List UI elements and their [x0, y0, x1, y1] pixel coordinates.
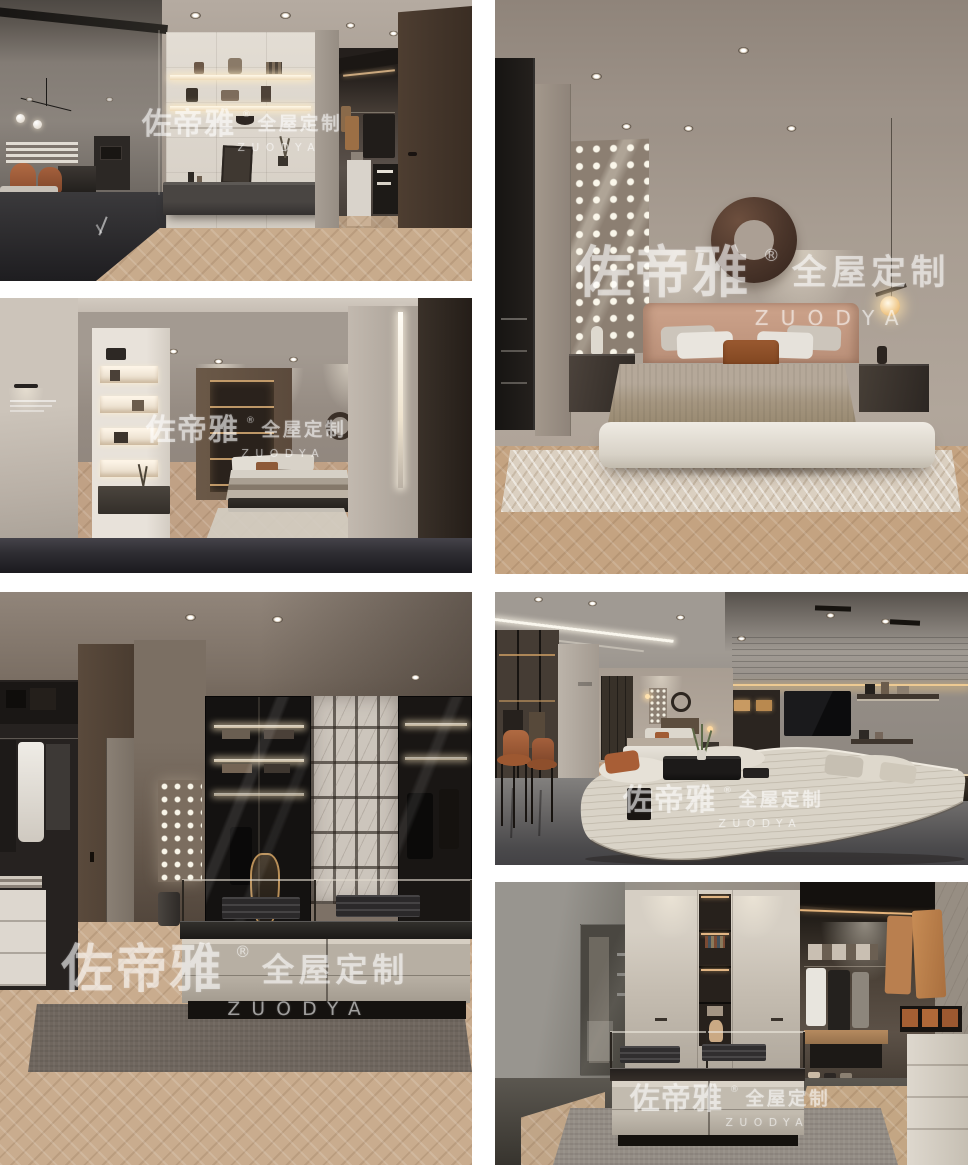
closet-room: [339, 48, 399, 242]
ceiling-downlight: [676, 615, 685, 621]
window-slats: [6, 142, 78, 166]
ceiling-downlight: [591, 73, 602, 80]
folded-clothes-stack: [222, 897, 300, 919]
bed-blanket: [226, 470, 352, 500]
photo-wardrobe-island-closet: 佐帝雅®全屋定制 ZUODYA: [495, 882, 968, 1165]
glass-rail-post: [182, 880, 184, 926]
folded-towels: [0, 876, 42, 888]
closet-led: [499, 700, 555, 702]
wall-plaque-line: [10, 405, 52, 407]
vertical-light-strip: [398, 312, 403, 488]
door-handle: [771, 1018, 783, 1021]
blanket-texture: [607, 364, 857, 428]
island-plinth: [618, 1135, 798, 1146]
ceiling-downlight: [787, 125, 797, 131]
drawer-line: [907, 1064, 968, 1066]
shelf-divider: [699, 966, 731, 968]
shelf-decor: [881, 682, 889, 694]
brand-watermark: 佐帝雅®全屋定制 ZUODYA: [576, 246, 950, 328]
hanging-coat-dark: [46, 744, 70, 830]
lit-niche: [756, 700, 772, 711]
shelf-box: [707, 1006, 723, 1016]
walnut-door-panel: [398, 6, 472, 258]
cubby-boxes: [900, 1006, 962, 1032]
lighted-niche: [100, 460, 158, 477]
hanging-jacket-dark: [828, 970, 850, 1032]
shelf-led: [701, 933, 729, 935]
hanging-garments-dark: [363, 114, 395, 158]
door-handle: [408, 152, 417, 156]
ceiling-downlight: [272, 616, 283, 623]
lighted-shelf: [170, 75, 311, 80]
ceiling-downlight: [826, 613, 835, 619]
wood-band-glow: [732, 684, 968, 686]
folded-clothes-stack: [336, 895, 420, 917]
brand-watermark: 佐帝雅®全屋定制 ZUODYA: [146, 416, 347, 460]
door-wash: [639, 896, 703, 940]
ceiling-downlight: [881, 619, 890, 625]
drawer-line: [907, 1096, 968, 1098]
folded-clothes-stack: [620, 1046, 680, 1063]
shelf-decor: [865, 684, 875, 694]
island-counter: [58, 166, 96, 192]
plant-vase: [697, 750, 706, 760]
hanging-rod: [804, 966, 888, 967]
hanging-garment-tan: [885, 916, 914, 995]
drawer-unit: [0, 890, 46, 986]
pendant-globe: [16, 114, 25, 123]
shelf-folded-stacks: [808, 944, 878, 960]
hanging-garment-tan: [345, 116, 359, 150]
left-room: [0, 0, 162, 196]
pedestal-decor: [351, 152, 363, 160]
ceiling-downlight: [280, 12, 291, 19]
wall-tv: [784, 691, 851, 736]
bar-stool: [497, 730, 531, 828]
hat-box: [106, 348, 126, 360]
folded-clothes-stack: [702, 1044, 766, 1061]
nightstand: [859, 364, 929, 412]
shelf-decor-vase: [228, 58, 242, 74]
orange-box: [902, 1009, 918, 1027]
drawer-tower: [907, 1034, 968, 1165]
shelf-decor-vase: [194, 62, 204, 74]
shelf-reflection: [501, 382, 527, 384]
shelf-books: [377, 182, 391, 185]
lit-niche: [734, 700, 750, 711]
stool-leg: [513, 766, 515, 828]
herringbone-floor: [96, 228, 472, 281]
orange-box: [922, 1009, 938, 1027]
shelf-books: [377, 170, 393, 173]
nightstand-decor: [877, 346, 887, 364]
stool-leg: [531, 768, 533, 824]
ceiling-dark-corner: [260, 592, 472, 710]
nook-round-mirror: [671, 692, 691, 712]
island-top-slab: [610, 1068, 805, 1081]
hanging-shirt-white: [806, 968, 826, 1026]
shelf-decor-books: [266, 62, 282, 74]
shelf-divider: [699, 930, 731, 932]
shelf-underglow: [857, 699, 939, 701]
waste-bin: [158, 892, 180, 926]
photo-bedroom-suite-view: 佐帝雅®全屋定制 ZUODYA: [0, 298, 472, 573]
shelf-decor-vessel: [261, 86, 271, 102]
side-table: [743, 768, 769, 778]
niche-decor: [132, 400, 144, 411]
shelf-led: [701, 896, 729, 898]
island-top-slab: [180, 921, 472, 939]
ceiling-downlight: [389, 31, 398, 37]
closet-led: [499, 654, 555, 656]
pillar-sign: [578, 682, 592, 686]
hanging-coat-gray: [852, 972, 869, 1028]
lit-shelf-column: [699, 894, 731, 1046]
oven: [100, 146, 122, 160]
stool-leg: [551, 768, 553, 822]
glass-rail-top: [182, 879, 472, 881]
upper-wood-band: [732, 636, 968, 686]
photo-collage: 佐帝雅®全屋定制 ZUODYA: [0, 0, 968, 1165]
pendant-globe: [33, 120, 42, 129]
lighted-niche: [100, 396, 158, 413]
stool-leg: [501, 764, 503, 826]
bar-stool: [527, 738, 557, 826]
shelf-reflection: [501, 350, 527, 352]
glass-rail-post: [470, 880, 472, 926]
lighted-niche: [100, 366, 158, 383]
glass-rail-post: [314, 880, 316, 926]
ceiling-recess: [0, 7, 168, 34]
beige-door-panel: [535, 84, 571, 436]
ceiling-downlight: [26, 97, 34, 102]
shelf-decor: [859, 730, 869, 739]
dark-gloss-floor: [0, 538, 472, 573]
bed-base: [599, 422, 935, 468]
brand-watermark: 佐帝雅®全屋定制 ZUODYA: [623, 786, 824, 830]
dark-side-panel: [418, 298, 472, 556]
wall-plaque-line: [10, 410, 44, 412]
wall-plaque-line: [10, 400, 56, 402]
perforated-light-panel: [158, 780, 202, 882]
hanging-garment-tan: [912, 909, 947, 998]
shelf-books: [705, 936, 725, 948]
shelf-led: [701, 969, 729, 971]
hanging-rod: [0, 738, 78, 739]
area-rug: [206, 508, 356, 540]
bed-cushion-rust: [723, 340, 779, 368]
photo-showroom-display-wall: 佐帝雅®全屋定制 ZUODYA: [0, 0, 472, 281]
kitchen-unit: [94, 136, 130, 190]
ceiling-downlight: [622, 123, 632, 129]
shelf-divider: [699, 1002, 731, 1004]
shelf-decor: [897, 686, 909, 694]
ceiling-downlight: [588, 601, 597, 607]
glass-wardrobe: [495, 58, 535, 430]
ceiling-downlight: [684, 125, 694, 131]
marble-column: [311, 696, 398, 904]
storage-box: [6, 690, 26, 708]
ceiling-downlight: [185, 614, 196, 621]
nook-lamp-glow: [645, 694, 650, 699]
hanging-shirt-white: [18, 742, 44, 842]
left-wall: [0, 298, 78, 573]
drawer-line: [907, 1128, 968, 1130]
door-handle: [655, 1018, 667, 1021]
ceiling-downlight: [106, 97, 114, 102]
ceiling-downlight: [289, 357, 298, 363]
brand-watermark: 佐帝雅®全屋定制 ZUODYA: [61, 944, 409, 1020]
shelf-decor: [875, 732, 883, 739]
bench-base: [810, 1044, 882, 1068]
ceiling-downlight: [534, 597, 543, 603]
bed-blanket: [607, 364, 857, 428]
shelf-reflection: [501, 318, 527, 320]
brand-watermark: 佐帝雅®全屋定制 ZUODYA: [630, 1085, 831, 1129]
shelf-decor-vessel: [221, 90, 239, 101]
ceiling-downlight: [169, 349, 178, 355]
ceiling-downlight: [411, 675, 420, 681]
hanging-coat-dark: [0, 740, 16, 852]
bench-top: [804, 1030, 888, 1044]
ceiling-downlight: [190, 12, 201, 19]
niche-decor: [114, 432, 128, 443]
niche-decor: [110, 370, 120, 381]
brand-watermark: 佐帝雅®全屋定制 ZUODYA: [142, 110, 343, 154]
photo-walk-in-closet-islands: 佐帝雅®全屋定制 ZUODYA: [0, 592, 472, 1165]
photo-living-room-sectional: 佐帝雅®全屋定制 ZUODYA: [495, 592, 968, 865]
floating-cabinet: [98, 486, 170, 514]
orange-box: [942, 1009, 958, 1027]
ceiling-downlight: [738, 47, 749, 54]
right-pillar: [348, 306, 418, 550]
ceiling-downlight: [346, 23, 355, 29]
nightstand-figurine: [591, 326, 603, 354]
door-handle: [90, 852, 94, 862]
shelf-decor-vessel: [186, 88, 198, 102]
photo-bedroom-ring-art: 佐帝雅®全屋定制 ZUODYA: [495, 0, 968, 574]
storage-box: [30, 688, 56, 710]
pendant-stem: [46, 78, 47, 106]
